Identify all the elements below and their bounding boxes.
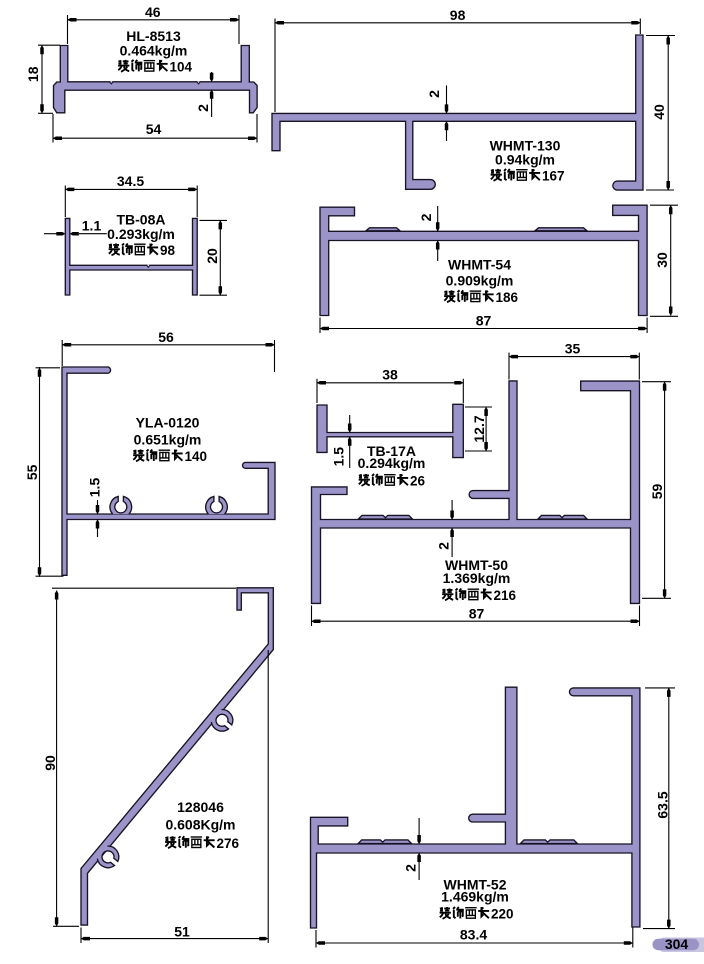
- svg-text:WHMT-54: WHMT-54: [448, 257, 511, 273]
- svg-text:0.651kg/m: 0.651kg/m: [134, 431, 202, 447]
- svg-text:104: 104: [170, 59, 193, 74]
- svg-text:63.5: 63.5: [655, 791, 671, 818]
- svg-text:128046: 128046: [177, 799, 224, 815]
- svg-text:59: 59: [649, 484, 665, 500]
- svg-text:1.5: 1.5: [331, 447, 347, 467]
- svg-text:2: 2: [195, 104, 211, 112]
- svg-text:12.7: 12.7: [471, 415, 487, 442]
- svg-text:2: 2: [418, 213, 434, 221]
- svg-text:0.464kg/m: 0.464kg/m: [120, 42, 188, 58]
- svg-text:0.294kg/m: 0.294kg/m: [358, 455, 426, 471]
- svg-text:1.1: 1.1: [82, 218, 102, 234]
- svg-text:87: 87: [469, 606, 485, 622]
- svg-text:304: 304: [665, 936, 689, 952]
- svg-text:56: 56: [158, 329, 174, 345]
- svg-text:55: 55: [24, 464, 40, 480]
- svg-text:34.5: 34.5: [117, 173, 144, 189]
- svg-text:98: 98: [450, 7, 466, 23]
- svg-text:276: 276: [217, 836, 240, 851]
- svg-text:1.369kg/m: 1.369kg/m: [443, 570, 511, 586]
- svg-text:0.909kg/m: 0.909kg/m: [446, 273, 514, 289]
- svg-text:26: 26: [410, 473, 426, 488]
- svg-text:2: 2: [403, 864, 419, 872]
- svg-text:18: 18: [25, 66, 41, 82]
- svg-text:46: 46: [145, 4, 161, 20]
- svg-text:87: 87: [476, 313, 492, 329]
- svg-text:1.469kg/m: 1.469kg/m: [441, 889, 509, 905]
- svg-text:40: 40: [651, 104, 667, 120]
- svg-text:20: 20: [204, 248, 220, 264]
- svg-text:0.608Kg/m: 0.608Kg/m: [165, 817, 235, 833]
- svg-text:54: 54: [146, 121, 162, 137]
- svg-text:0.94kg/m: 0.94kg/m: [495, 152, 555, 168]
- svg-text:167: 167: [542, 168, 565, 183]
- svg-text:51: 51: [174, 923, 190, 939]
- svg-text:35: 35: [565, 340, 581, 356]
- svg-text:38: 38: [382, 367, 398, 383]
- svg-text:1.5: 1.5: [87, 478, 103, 498]
- svg-text:30: 30: [654, 252, 670, 268]
- svg-text:220: 220: [491, 906, 514, 921]
- svg-text:2: 2: [426, 90, 442, 98]
- svg-text:98: 98: [160, 243, 176, 258]
- svg-text:90: 90: [42, 755, 58, 771]
- svg-text:140: 140: [185, 449, 208, 464]
- svg-text:186: 186: [496, 290, 519, 305]
- svg-text:83.4: 83.4: [460, 927, 487, 943]
- svg-text:YLA-0120: YLA-0120: [136, 415, 200, 431]
- svg-text:0.293kg/m: 0.293kg/m: [107, 226, 175, 242]
- svg-text:216: 216: [494, 588, 517, 603]
- svg-text:2: 2: [436, 542, 452, 550]
